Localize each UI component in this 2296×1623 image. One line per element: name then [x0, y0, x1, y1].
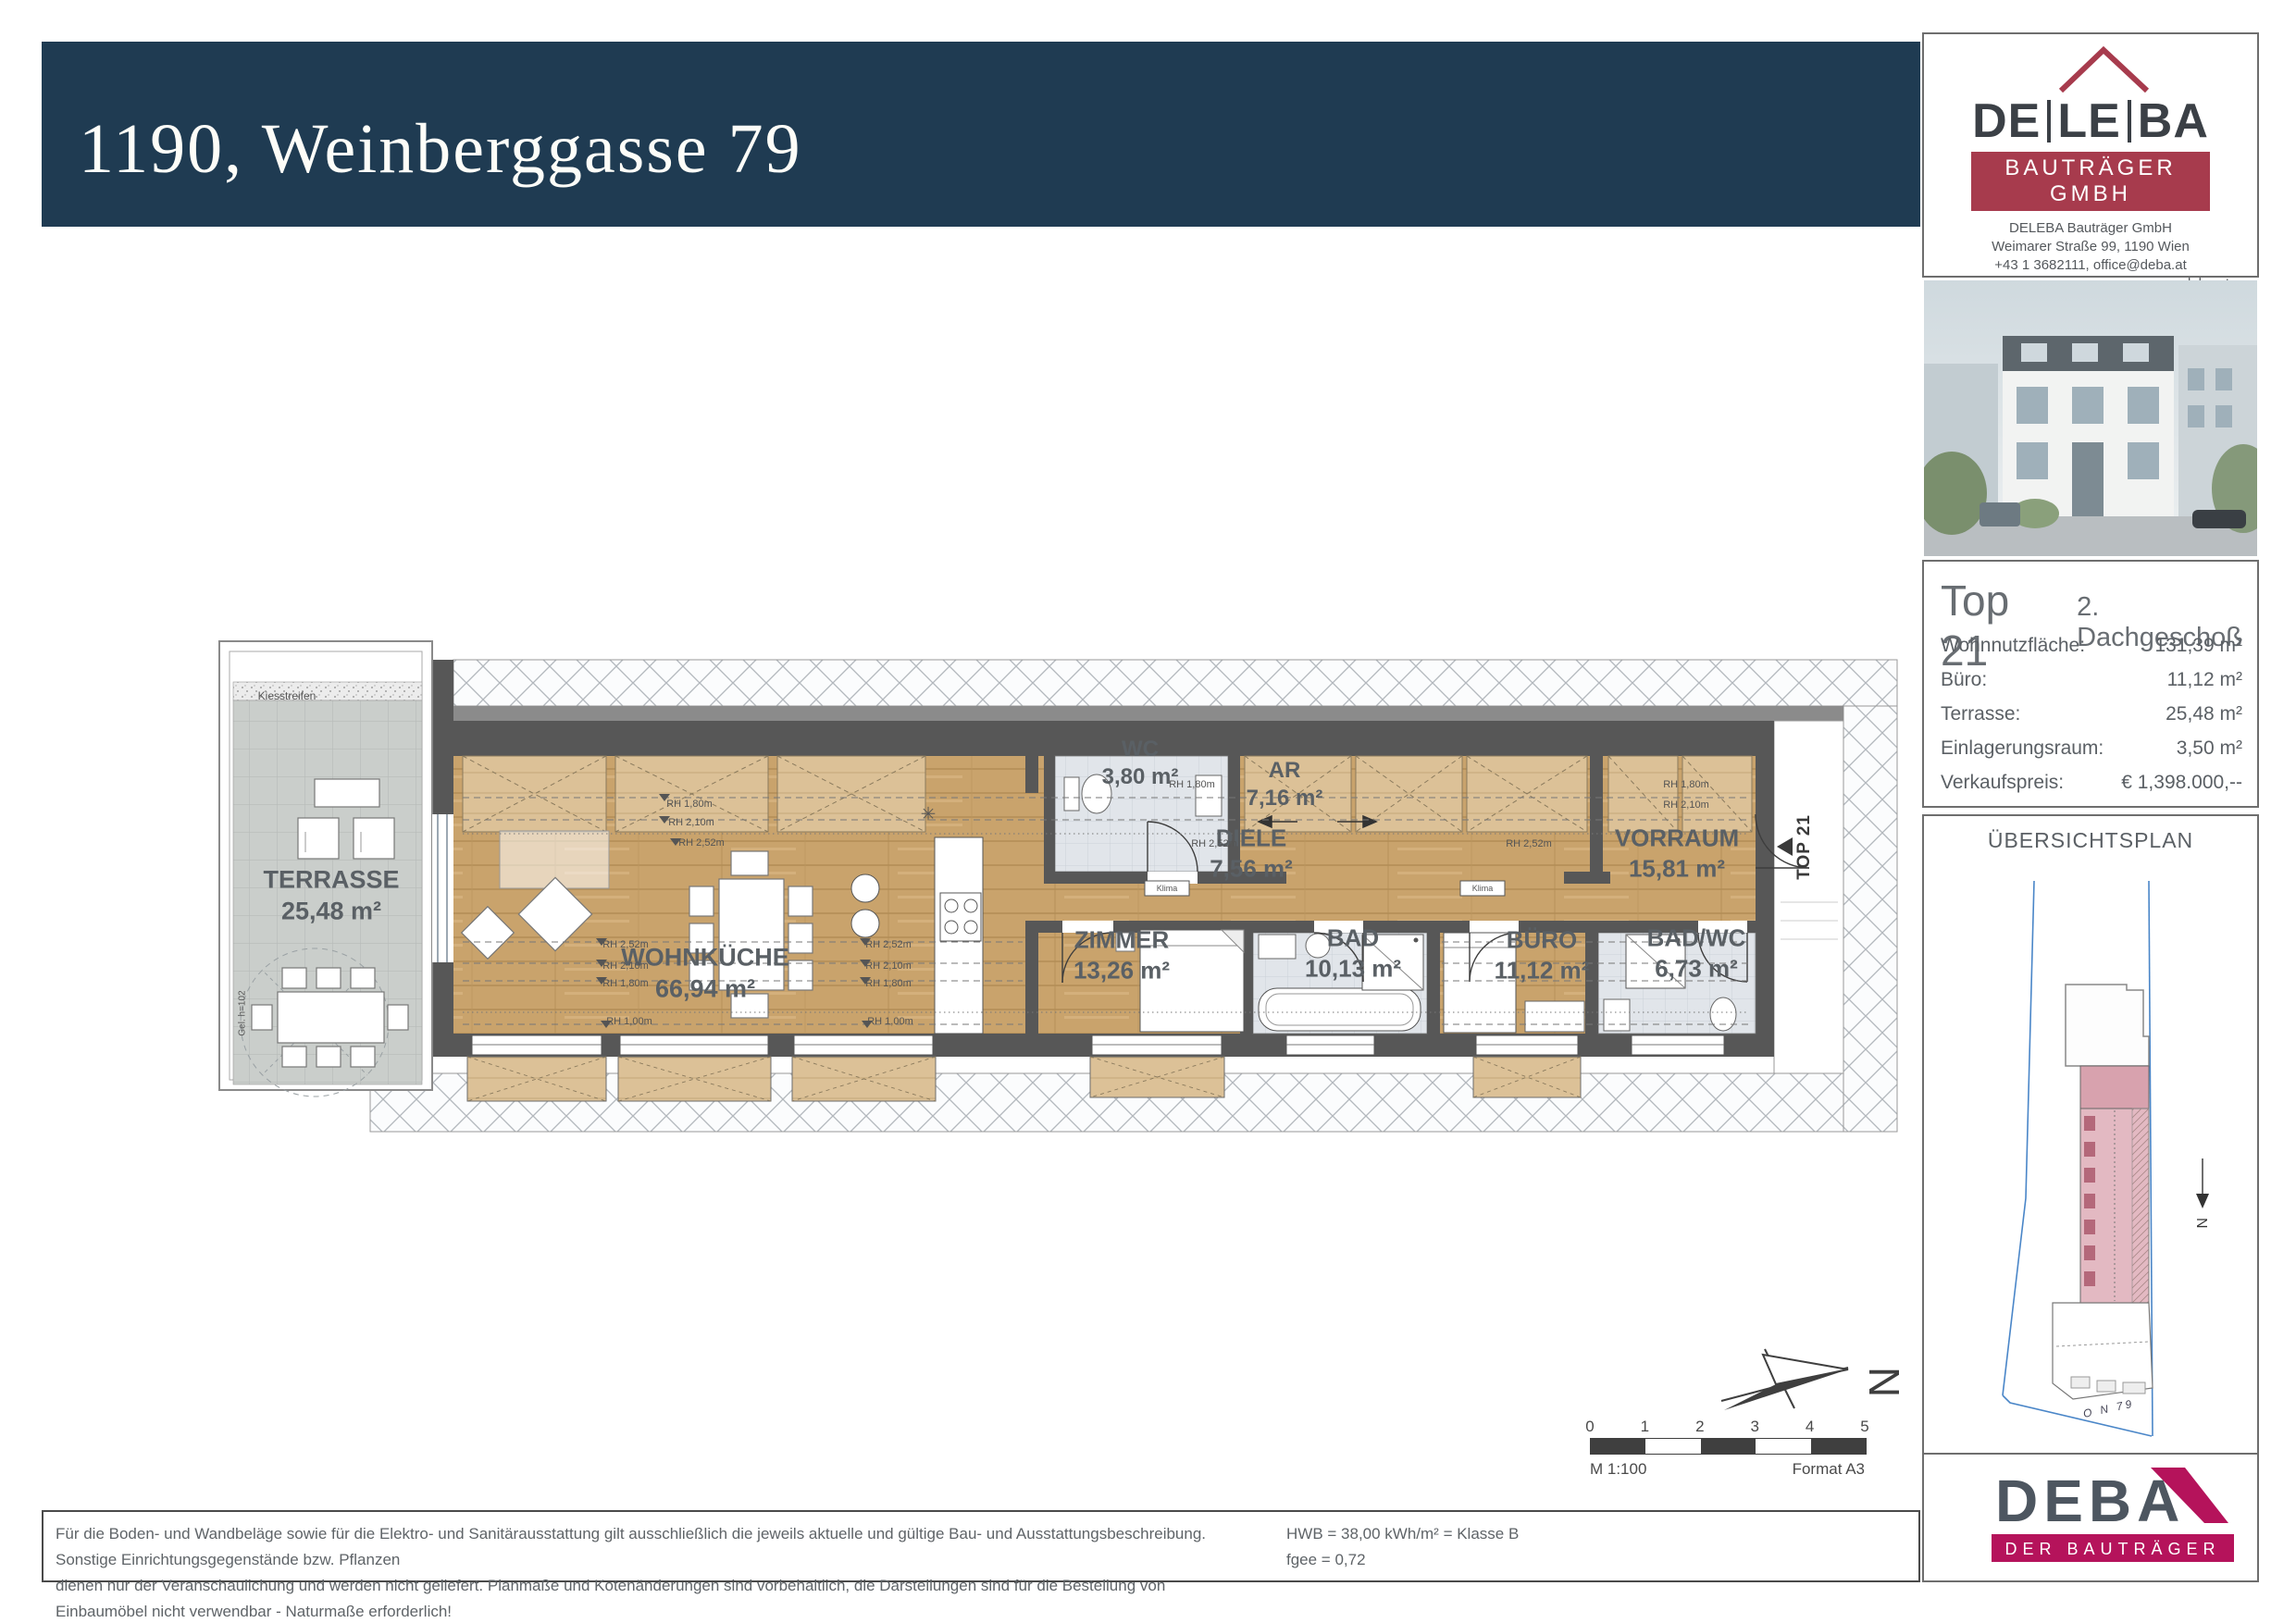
logo-separator — [2047, 100, 2051, 142]
scale-tick: 2 — [1695, 1418, 1704, 1436]
energy-fgee: fgee = 0,72 — [1286, 1547, 1519, 1573]
site-plan-north-label: N — [2193, 1218, 2209, 1229]
room-label: WC3,80 m² — [1102, 736, 1179, 791]
scale-tick: 0 — [1585, 1418, 1594, 1436]
scale-tick: 4 — [1806, 1418, 1814, 1436]
unit-data-row: Büro:11,12 m² — [1941, 669, 2242, 691]
room-label: VORRAUM15,81 m² — [1615, 824, 1739, 884]
disclaimer-text: Für die Boden- und Wandbeläge sowie für … — [56, 1521, 1231, 1623]
plan-annotation: Gel. h=102 — [238, 990, 248, 1035]
deba-logo-banner: DER BAUTRÄGER — [2004, 1540, 2220, 1558]
plan-annotation: RH 2,10m — [602, 960, 649, 972]
floor-plan-sheet: 1190, Weinberggasse 79 DE LE BA BAUTRÄGE… — [0, 0, 2296, 1623]
energy-hwb: HWB = 38,00 kWh/m² = Klasse B — [1286, 1521, 1519, 1547]
site-plan-drawing: O N 79 N — [1924, 861, 2257, 1448]
building-photo — [1924, 280, 2257, 556]
site-plan-title: ÜBERSICHTSPLAN — [1922, 828, 2259, 853]
format-label: Format A3 — [1744, 1460, 1865, 1479]
room-label: BAD10,13 m² — [1305, 923, 1401, 984]
plan-annotation: RH 2,10m — [668, 817, 714, 828]
disclaimer-line-1: Für die Boden- und Wandbeläge sowie für … — [56, 1521, 1231, 1573]
plan-annotation: RH 2,52m — [865, 939, 912, 950]
plan-annotation: RH 2,52m — [1191, 838, 1237, 849]
room-label: DIELE7,56 m² — [1210, 824, 1293, 884]
entrance-arrow-icon — [1777, 837, 1793, 856]
plan-annotation: RH 1,00m — [867, 1016, 913, 1027]
scale-bar-ticks: 012345 — [1590, 1418, 1866, 1434]
unit-data-row: Verkaufspreis:€ 1,398.000,-- — [1941, 772, 2242, 794]
scale-tick: 5 — [1860, 1418, 1868, 1436]
deba-logo: DEBA DER BAUTRÄGER — [1992, 1468, 2240, 1577]
plan-annotation: RH 2,52m — [678, 837, 725, 849]
energy-info: HWB = 38,00 kWh/m² = Klasse B fgee = 0,7… — [1286, 1521, 1519, 1573]
room-label: BAD/WC6,73 m² — [1647, 923, 1746, 984]
entrance-label: TOP 21 — [1794, 814, 1815, 880]
plan-annotation: RH 1,80m — [1169, 779, 1215, 790]
logo-part-le: LE — [2057, 97, 2120, 145]
site-plan-street-label: O N 79 — [2082, 1397, 2136, 1420]
plan-annotation: ✳ — [921, 803, 937, 826]
site-plan-north-icon: N — [2193, 1158, 2209, 1229]
disclaimer-line-2: dienen nur der Veranschaulichung und wer… — [56, 1573, 1231, 1623]
scale-bar — [1590, 1438, 1867, 1455]
plan-annotation: Klima — [1157, 884, 1178, 893]
logo-roof-icon — [1922, 44, 2259, 93]
plan-annotation: RH 1,80m — [602, 978, 649, 989]
company-address: Weimarer Straße 99, 1190 Wien — [1952, 238, 2229, 256]
scale-tick: 3 — [1750, 1418, 1758, 1436]
plan-annotation: RH 2,10m — [1663, 799, 1709, 811]
plan-annotation: RH 2,10m — [865, 960, 912, 972]
room-label: TERRASSE25,48 m² — [263, 864, 399, 927]
plan-annotation: RH 1,00m — [606, 1016, 652, 1027]
page-title: 1190, Weinberggasse 79 — [79, 109, 802, 190]
plan-annotation: RH 1,80m — [1663, 779, 1709, 790]
room-label: WOHNKÜCHE66,94 m² — [621, 942, 789, 1005]
floor-plan-drawing — [213, 634, 1906, 1138]
company-name: DELEBA Bauträger GmbH — [1952, 219, 2229, 238]
logo-banner: BAUTRÄGER GMBH — [1971, 152, 2210, 211]
plan-annotation: RH 1,80m — [865, 978, 912, 989]
plan-annotation: Kiesstreifen — [258, 689, 316, 702]
plan-annotation: RH 2,52m — [602, 939, 649, 950]
scale-label: M 1:100 — [1590, 1460, 1646, 1479]
plan-annotation: Klima — [1472, 884, 1494, 893]
north-arrow-label: N — [1860, 1367, 1908, 1397]
unit-data-row: Wohnnutzfläche:131,39 m² — [1941, 635, 2242, 657]
plan-annotation: RH 1,80m — [666, 799, 713, 810]
unit-data-row: Terrasse:25,48 m² — [1941, 703, 2242, 725]
logo-part-ba: BA — [2138, 97, 2209, 145]
company-logo: DE LE BA BAUTRÄGER GMBH DELEBA Bauträger… — [1922, 44, 2259, 293]
room-label: AR7,16 m² — [1247, 757, 1323, 812]
unit-data-row: Einlagerungsraum:3,50 m² — [1941, 737, 2242, 760]
logo-separator — [2128, 100, 2131, 142]
deba-logo-text: DEBA — [1995, 1468, 2185, 1534]
room-label: ZIMMER13,26 m² — [1074, 925, 1170, 985]
north-arrow-icon: N — [1707, 1344, 1911, 1427]
logo-letters: DE LE BA — [1922, 97, 2259, 145]
plan-annotation: RH 2,52m — [1506, 838, 1552, 849]
room-label: BÜRO11,12 m² — [1495, 925, 1590, 985]
logo-part-de: DE — [1972, 97, 2041, 145]
company-phone-email: +43 1 3682111, office@deba.at — [1952, 256, 2229, 275]
entrance-marker: TOP 21 — [1777, 814, 1815, 880]
unit-data-rows: Wohnnutzfläche:131,39 m²Büro:11,12 m²Ter… — [1941, 635, 2242, 806]
scale-tick: 1 — [1641, 1418, 1649, 1436]
